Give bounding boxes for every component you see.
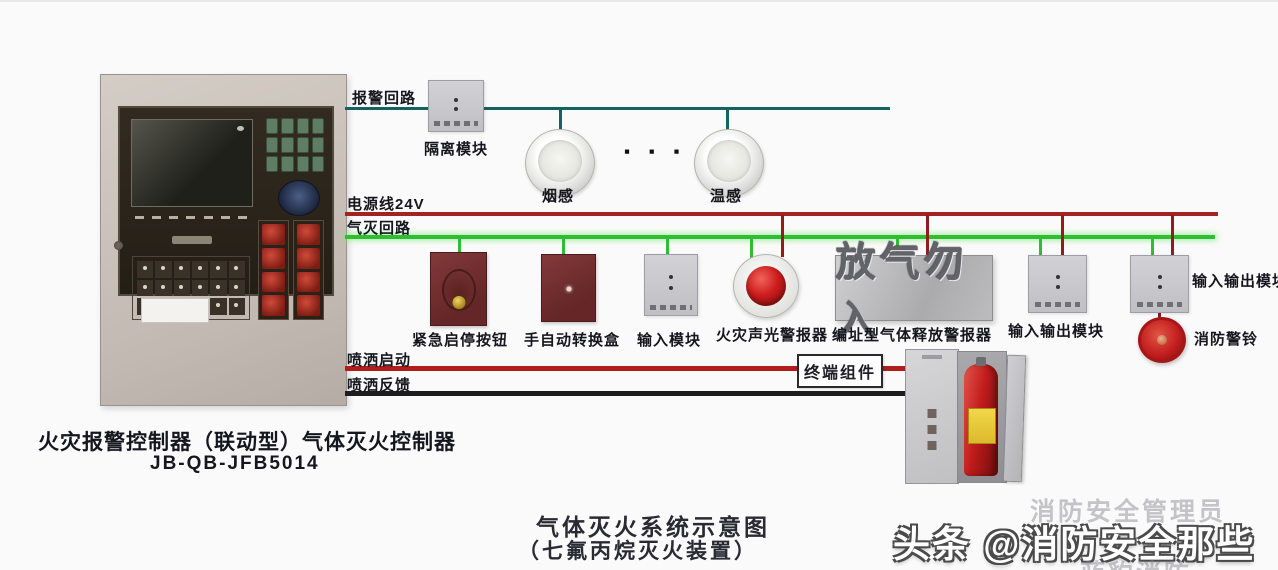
input-module-label: 输入模块 <box>637 329 701 350</box>
isolator-module-label: 隔离模块 <box>424 138 488 159</box>
green-drop-2 <box>562 238 565 255</box>
input-module <box>644 254 698 316</box>
sound-light-alarm <box>733 254 799 318</box>
terminal-component-box: 终端组件 <box>797 354 883 388</box>
emergency-start-stop-button <box>430 252 487 326</box>
cabinet-label-sticker <box>141 298 209 323</box>
smoke-detector-label: 烟感 <box>542 185 574 206</box>
io-module-2 <box>1130 255 1189 313</box>
indicator-row <box>131 210 251 226</box>
terminal-component-label: 终端组件 <box>804 359 876 383</box>
cylinder-label <box>968 408 996 444</box>
extinguisher-cylinder <box>964 364 998 476</box>
controller-front-panel <box>118 106 334 296</box>
gas-loop-line <box>345 235 1215 239</box>
io-module-1 <box>1028 255 1087 313</box>
ellipsis-dots: ▪ ▪ ▪ <box>624 142 687 162</box>
diagram-caption-line2: （七氟丙烷灭火装置） <box>518 535 758 565</box>
keypad <box>266 118 324 172</box>
brand-logo-mark <box>172 236 212 244</box>
lcd-screen <box>131 119 253 207</box>
red-drop-4 <box>1171 215 1174 256</box>
gas-loop-label: 气灭回路 <box>347 217 411 238</box>
sound-light-alarm-label: 火灾声光警报器 <box>716 324 828 345</box>
cabinet-open-bay <box>957 351 1007 483</box>
red-drop-1 <box>781 215 784 257</box>
alarm-loop-line <box>345 107 890 110</box>
cabinet-open-door <box>1003 355 1026 483</box>
fire-bell <box>1138 317 1186 363</box>
alarm-red-dome <box>746 266 786 306</box>
green-drop-7 <box>1151 238 1154 256</box>
io-module-1-label: 输入输出模块 <box>1008 320 1104 341</box>
spray-start-label: 喷洒启动 <box>347 349 411 370</box>
spray-feedback-label: 喷洒反馈 <box>347 374 411 395</box>
heat-detector-label: 温感 <box>710 185 742 206</box>
cylinder-valve <box>976 357 986 366</box>
gas-release-alarm-label: 编址型气体释放警报器 <box>832 324 992 345</box>
manual-auto-switch-box <box>541 254 596 322</box>
gas-cylinder-cabinet <box>905 349 1023 482</box>
cabinet-keyhole <box>114 241 123 250</box>
alarm-loop-label: 报警回路 <box>352 87 416 108</box>
heat-drop-wire <box>726 109 729 131</box>
controller-model: JB-QB-JFB5014 <box>150 453 320 475</box>
green-drop-3 <box>666 238 669 255</box>
cabinet-closed-door <box>905 349 959 484</box>
screen-glint <box>237 126 244 131</box>
manual-button-panels <box>258 220 324 320</box>
green-drop-4 <box>750 238 753 258</box>
red-drop-3 <box>1061 215 1064 256</box>
fire-alarm-controller-cabinet <box>100 74 347 406</box>
io-module-2-label: 输入输出模块 <box>1192 270 1278 291</box>
green-drop-6 <box>1039 238 1042 256</box>
smoke-drop-wire <box>559 109 562 131</box>
gas-extinguishing-system-diagram: 报警回路 电源线24V 气灭回路 喷洒启动 喷洒反馈 隔离模块 烟感 ▪ ▪ ▪… <box>0 0 1278 570</box>
spray-feedback-line <box>345 391 907 396</box>
emergency-button-label: 紧急启停按钮 <box>412 329 508 350</box>
fire-bell-label: 消防警铃 <box>1194 328 1258 349</box>
nav-pad <box>278 180 320 216</box>
controller-title: 火灾报警控制器（联动型）气体灭火控制器 <box>38 426 456 456</box>
power-24v-label: 电源线24V <box>347 193 425 214</box>
gas-discharge-sign: 放气勿入 <box>835 255 993 321</box>
manual-auto-box-label: 手自动转换盒 <box>524 329 620 350</box>
isolator-module <box>428 80 484 132</box>
